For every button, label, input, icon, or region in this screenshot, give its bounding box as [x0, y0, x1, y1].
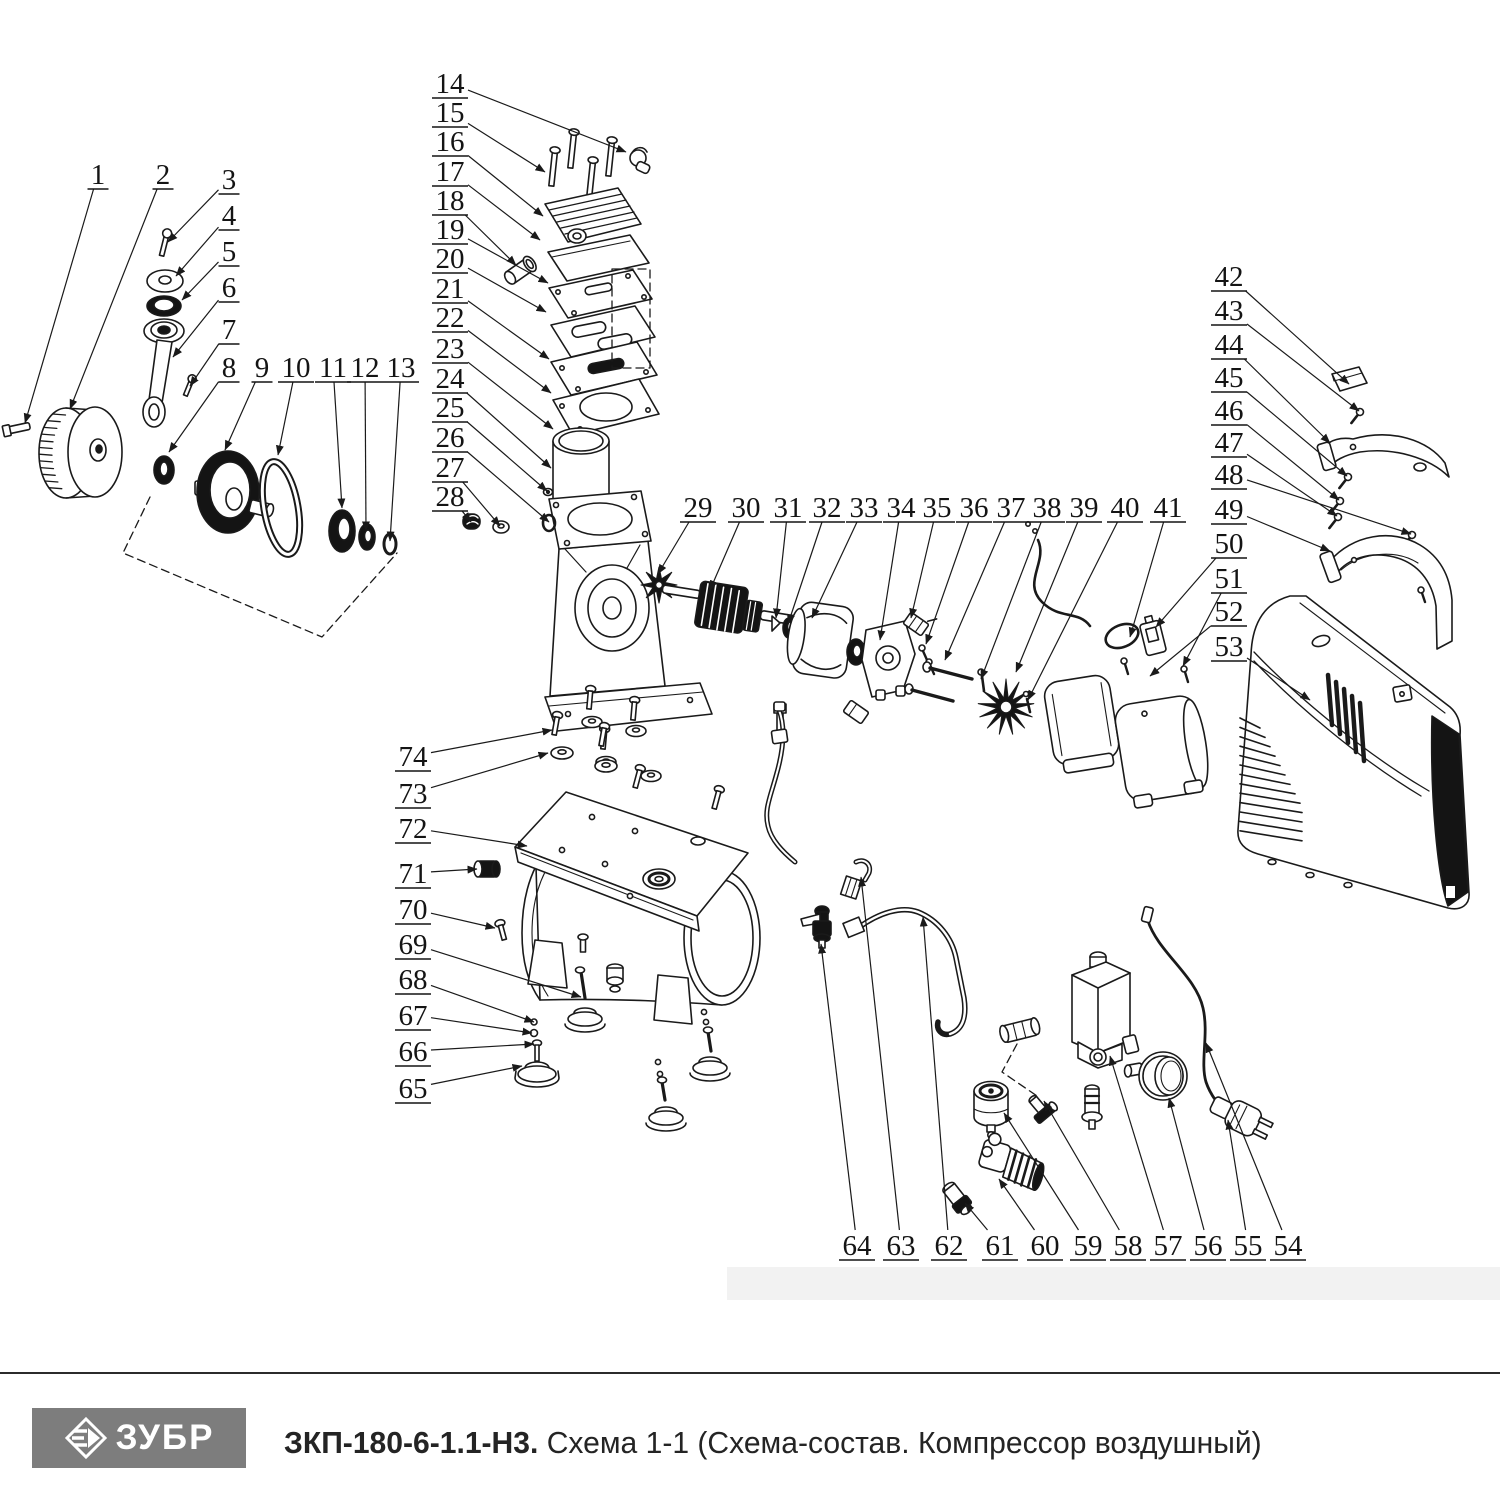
part-label-62: 62 [935, 1230, 964, 1262]
part-label-51: 51 [1215, 563, 1244, 595]
part-callout-12: 12 [347, 352, 383, 531]
part-label-70: 70 [399, 894, 428, 926]
part-callout-71: 71 [395, 858, 477, 890]
brand-logo: ЗУБР [32, 1408, 246, 1468]
part-label-1: 1 [91, 159, 106, 191]
leader-line-63 [861, 877, 899, 1230]
part-label-26: 26 [436, 422, 465, 454]
part-callout-13: 13 [383, 352, 419, 541]
leader-line-62 [923, 917, 948, 1230]
leader-line-54 [1206, 1043, 1282, 1230]
part-callout-67: 67 [395, 1000, 532, 1033]
leader-line-7 [190, 344, 219, 386]
leader-line-3 [168, 190, 219, 242]
check-fitting-drawing [1082, 1085, 1102, 1129]
part-label-44: 44 [1215, 329, 1245, 361]
leader-line-35 [911, 522, 934, 618]
upper-pipe-drawing [841, 861, 870, 899]
part-label-8: 8 [222, 352, 237, 384]
part-callout-70: 70 [395, 894, 495, 928]
part-label-42: 42 [1215, 261, 1244, 293]
leader-line-18 [465, 215, 516, 265]
part-label-46: 46 [1215, 395, 1244, 427]
leader-line-10 [278, 382, 293, 455]
part-label-32: 32 [813, 492, 842, 524]
leader-line-21 [468, 301, 549, 359]
part-callout-11: 11 [315, 352, 351, 508]
leader-line-50 [1156, 558, 1216, 627]
leader-line-39 [1016, 522, 1078, 672]
part-label-67: 67 [399, 1000, 428, 1032]
part-label-47: 47 [1215, 427, 1244, 459]
part-label-16: 16 [436, 126, 465, 158]
exploded-parts-diagram: 1234567891011121314151617181920212223242… [0, 0, 1500, 1372]
part-label-11: 11 [319, 352, 347, 384]
part-label-73: 73 [399, 778, 428, 810]
part-label-31: 31 [774, 492, 803, 524]
part-callout-30: 30 [710, 492, 764, 590]
outlet-elbow-drawing [630, 148, 651, 175]
stator-drawing [783, 600, 854, 680]
handle-top-drawing [1317, 435, 1449, 477]
part-label-29: 29 [684, 492, 713, 524]
part-label-50: 50 [1215, 528, 1244, 560]
leader-line-45 [1247, 392, 1347, 476]
small-seals-drawing [463, 489, 555, 534]
leader-line-12 [365, 382, 366, 531]
part-labels-layer: 1234567891011121314151617181920212223242… [25, 68, 1411, 1262]
piston-assembly-drawing [143, 228, 197, 427]
leader-line-38 [981, 522, 1041, 679]
part-label-63: 63 [887, 1230, 916, 1262]
elbow-fitting-drawing [1023, 1088, 1059, 1124]
part-label-33: 33 [850, 492, 879, 524]
part-callout-65: 65 [395, 1066, 522, 1105]
impeller-pin-drawing [1024, 692, 1031, 713]
leader-line-1 [25, 189, 94, 423]
leader-line-29 [658, 522, 689, 574]
crankcase-drawing [545, 491, 712, 731]
part-label-37: 37 [997, 492, 1026, 524]
leader-line-17 [468, 185, 540, 240]
part-callout-55: 55 [1228, 1120, 1266, 1262]
page: 1234567891011121314151617181920212223242… [0, 0, 1500, 1500]
part-label-34: 34 [887, 492, 917, 524]
cylinder-head-drawing [545, 188, 641, 243]
part-label-21: 21 [436, 273, 465, 305]
head-bolts-drawing [546, 128, 617, 196]
part-label-68: 68 [399, 964, 428, 996]
leader-line-67 [431, 1018, 532, 1033]
part-label-3: 3 [222, 164, 237, 196]
leader-line-8 [169, 382, 219, 452]
handle-screws-drawing [1327, 407, 1417, 548]
part-callout-1: 1 [25, 159, 109, 423]
leader-line-55 [1228, 1120, 1246, 1230]
leader-line-24 [467, 393, 551, 468]
part-label-66: 66 [399, 1036, 428, 1068]
scheme-caption: Схема 1-1 (Схема-состав. Компрессор возд… [538, 1425, 1261, 1460]
leader-line-33 [812, 522, 857, 618]
part-label-9: 9 [255, 352, 270, 384]
pressure-switch-drawing [1072, 952, 1139, 1068]
part-label-6: 6 [222, 272, 237, 304]
leader-line-68 [431, 985, 534, 1022]
part-label-12: 12 [351, 352, 380, 384]
safety-valve-drawing [801, 906, 831, 948]
part-label-74: 74 [399, 741, 429, 773]
part-label-41: 41 [1154, 492, 1183, 524]
leader-line-13 [390, 382, 400, 541]
pulley-drawing [39, 407, 122, 498]
motor-screws-drawing [905, 645, 984, 701]
part-label-59: 59 [1074, 1230, 1103, 1262]
cooling-impeller-drawing [978, 679, 1034, 734]
leader-line-30 [710, 522, 740, 590]
part-label-18: 18 [436, 185, 465, 217]
leader-line-2 [70, 189, 157, 409]
leader-line-23 [468, 362, 553, 429]
part-label-71: 71 [399, 858, 428, 890]
belt-drawing [256, 459, 306, 557]
leader-line-58 [1044, 1101, 1119, 1230]
part-label-27: 27 [436, 452, 465, 484]
leader-line-71 [431, 869, 477, 872]
part-callout-35: 35 [911, 492, 955, 618]
part-label-45: 45 [1215, 362, 1244, 394]
model-code: ЗКП-180-6-1.1-Н3. [284, 1425, 538, 1460]
part-label-23: 23 [436, 333, 465, 365]
leader-line-48 [1247, 480, 1411, 534]
part-label-55: 55 [1234, 1230, 1263, 1262]
leader-line-65 [431, 1066, 522, 1084]
part-label-54: 54 [1274, 1230, 1304, 1262]
leader-line-74 [431, 730, 552, 753]
part-label-64: 64 [843, 1230, 873, 1262]
leader-line-43 [1247, 324, 1359, 411]
motor-housing-shells-drawing [1042, 673, 1214, 809]
part-label-36: 36 [960, 492, 989, 524]
part-label-28: 28 [436, 481, 465, 513]
part-callout-10: 10 [278, 352, 314, 455]
part-label-72: 72 [399, 813, 428, 845]
leader-line-72 [431, 831, 527, 846]
tank-screw-drawing [494, 919, 509, 941]
leader-line-9 [225, 382, 255, 450]
part-label-4: 4 [222, 200, 237, 232]
leader-line-16 [468, 156, 543, 217]
part-label-22: 22 [436, 302, 465, 334]
leader-line-11 [334, 382, 342, 508]
background-band [727, 1267, 1500, 1300]
part-callout-74: 74 [395, 730, 552, 773]
part-label-2: 2 [156, 159, 171, 191]
part-label-24: 24 [436, 363, 466, 395]
part-label-10: 10 [282, 352, 311, 384]
part-callout-8: 8 [169, 352, 240, 452]
leader-line-36 [926, 522, 969, 644]
leader-line-37 [945, 522, 1005, 660]
motor-bearing-hole [853, 645, 861, 657]
brand-name: ЗУБР [116, 1418, 215, 1458]
part-label-19: 19 [436, 214, 465, 246]
part-callout-66: 66 [395, 1036, 534, 1068]
part-label-39: 39 [1070, 492, 1099, 524]
part-callout-72: 72 [395, 813, 527, 846]
part-label-56: 56 [1194, 1230, 1223, 1262]
leader-line-25 [467, 422, 547, 491]
power-cord-drawing [1141, 906, 1275, 1144]
rotor-drawing [658, 575, 804, 642]
part-callout-29: 29 [658, 492, 716, 574]
leader-line-61 [965, 1203, 988, 1230]
part-callout-31: 31 [770, 492, 806, 618]
vibration-bushing-drawing [474, 861, 500, 877]
hex-nipple-drawing [998, 1017, 1041, 1044]
part-label-40: 40 [1111, 492, 1140, 524]
part-label-60: 60 [1031, 1230, 1060, 1262]
leader-line-64 [821, 944, 855, 1230]
part-label-7: 7 [222, 314, 237, 346]
part-label-58: 58 [1114, 1230, 1143, 1262]
leader-line-42 [1246, 291, 1349, 384]
coupler-drawing [976, 1131, 1051, 1191]
leader-line-14 [468, 90, 626, 152]
part-callout-61: 61 [965, 1203, 1018, 1262]
part-label-35: 35 [923, 492, 952, 524]
leader-line-56 [1169, 1098, 1204, 1230]
cover-plate-drawing [1332, 367, 1367, 391]
motor-cable-drawing [1026, 522, 1142, 653]
leader-line-70 [431, 913, 495, 928]
leader-line-5 [182, 262, 219, 300]
leader-line-66 [431, 1044, 534, 1050]
document-title: ЗКП-180-6-1.1-Н3. Схема 1-1 (Схема-соста… [284, 1425, 1262, 1461]
part-label-65: 65 [399, 1073, 428, 1105]
pressure-gauge-drawing [1125, 1052, 1188, 1100]
part-label-17: 17 [436, 156, 465, 188]
part-label-43: 43 [1215, 295, 1244, 327]
part-label-57: 57 [1154, 1230, 1183, 1262]
discharge-tube-drawing [843, 910, 965, 1035]
pump-outlet-pipe-drawing [767, 702, 795, 862]
filter-cup-drawing [974, 1082, 1008, 1139]
leader-line-31 [776, 522, 786, 618]
leader-line-22 [468, 331, 551, 394]
part-label-52: 52 [1215, 596, 1244, 628]
part-label-61: 61 [986, 1230, 1015, 1262]
footer: ЗУБР ЗКП-180-6-1.1-Н3. Схема 1-1 (Схема-… [0, 1372, 1500, 1500]
crank-washer-drawing [154, 456, 174, 484]
leader-line-73 [431, 753, 548, 788]
shroud-drawing [1238, 596, 1469, 909]
part-label-30: 30 [732, 492, 761, 524]
part-label-49: 49 [1215, 494, 1244, 526]
part-label-15: 15 [436, 97, 465, 129]
part-label-48: 48 [1215, 459, 1244, 491]
part-label-13: 13 [387, 352, 416, 384]
part-callout-63: 63 [861, 877, 919, 1262]
leader-line-49 [1247, 517, 1330, 552]
part-label-38: 38 [1033, 492, 1062, 524]
part-label-25: 25 [436, 392, 465, 424]
crank-subassembly-dashed-outline [123, 497, 397, 637]
part-label-14: 14 [436, 68, 466, 100]
brand-emblem-icon [64, 1416, 108, 1460]
part-label-5: 5 [222, 236, 237, 268]
leader-line-26 [468, 452, 550, 522]
part-label-69: 69 [399, 929, 428, 961]
bearing-drawing [329, 510, 396, 554]
intake-fitting-drawing [502, 254, 539, 287]
key-bolt-drawing [2, 420, 31, 436]
part-label-20: 20 [436, 243, 465, 275]
part-callout-64: 64 [821, 944, 875, 1262]
part-label-53: 53 [1215, 631, 1244, 663]
